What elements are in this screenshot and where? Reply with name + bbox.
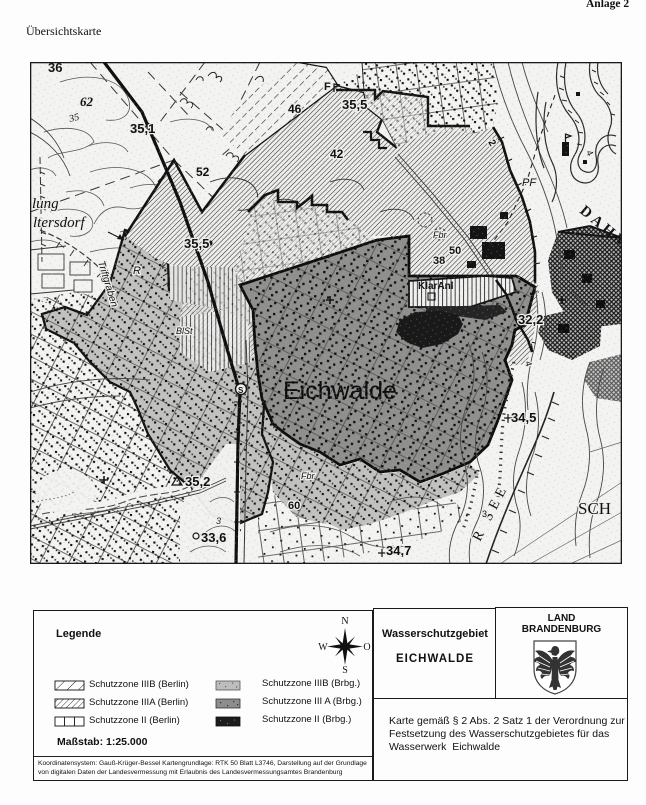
svg-text:S: S [342,665,348,675]
svg-text:N: N [341,616,348,627]
svg-text:O: O [363,642,370,653]
svg-text:W: W [318,642,328,653]
